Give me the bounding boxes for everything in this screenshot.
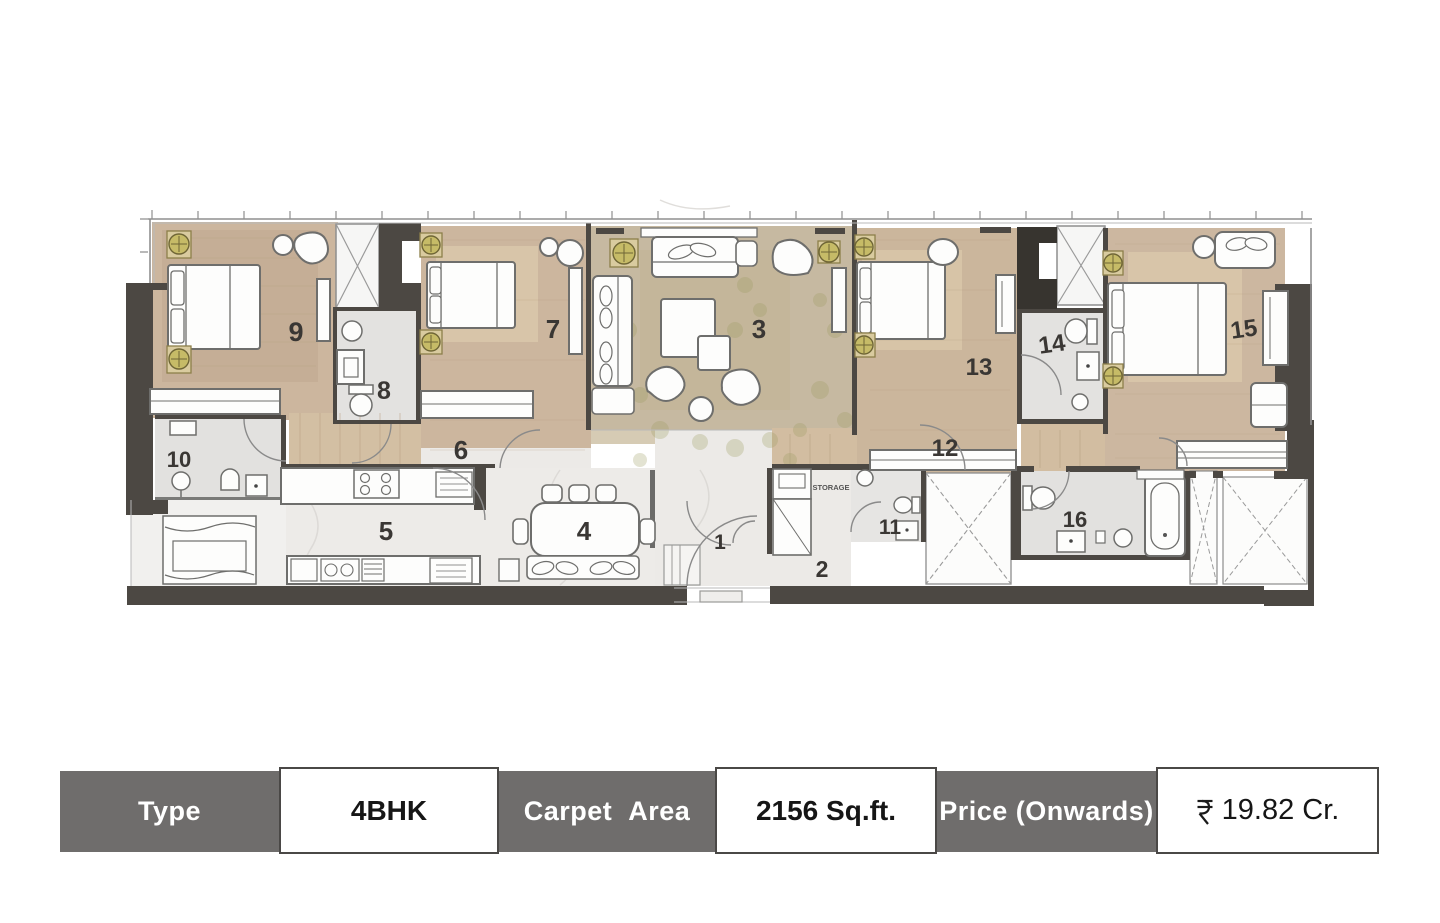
svg-text:5: 5: [379, 516, 393, 546]
svg-text:1: 1: [714, 531, 726, 554]
svg-text:10: 10: [167, 447, 191, 472]
svg-text:11: 11: [879, 516, 902, 539]
svg-text:12: 12: [932, 435, 959, 462]
svg-text:9: 9: [288, 317, 303, 347]
svg-text:4: 4: [577, 516, 592, 546]
svg-text:7: 7: [546, 314, 560, 344]
svg-text:14: 14: [1037, 329, 1068, 360]
svg-text:8: 8: [377, 377, 391, 405]
svg-text:6: 6: [454, 435, 468, 465]
svg-text:STORAGE: STORAGE: [813, 483, 850, 492]
svg-text:16: 16: [1063, 507, 1087, 532]
svg-text:2: 2: [816, 556, 829, 582]
svg-text:15: 15: [1229, 314, 1259, 344]
svg-text:3: 3: [752, 314, 766, 344]
svg-text:13: 13: [966, 354, 993, 381]
